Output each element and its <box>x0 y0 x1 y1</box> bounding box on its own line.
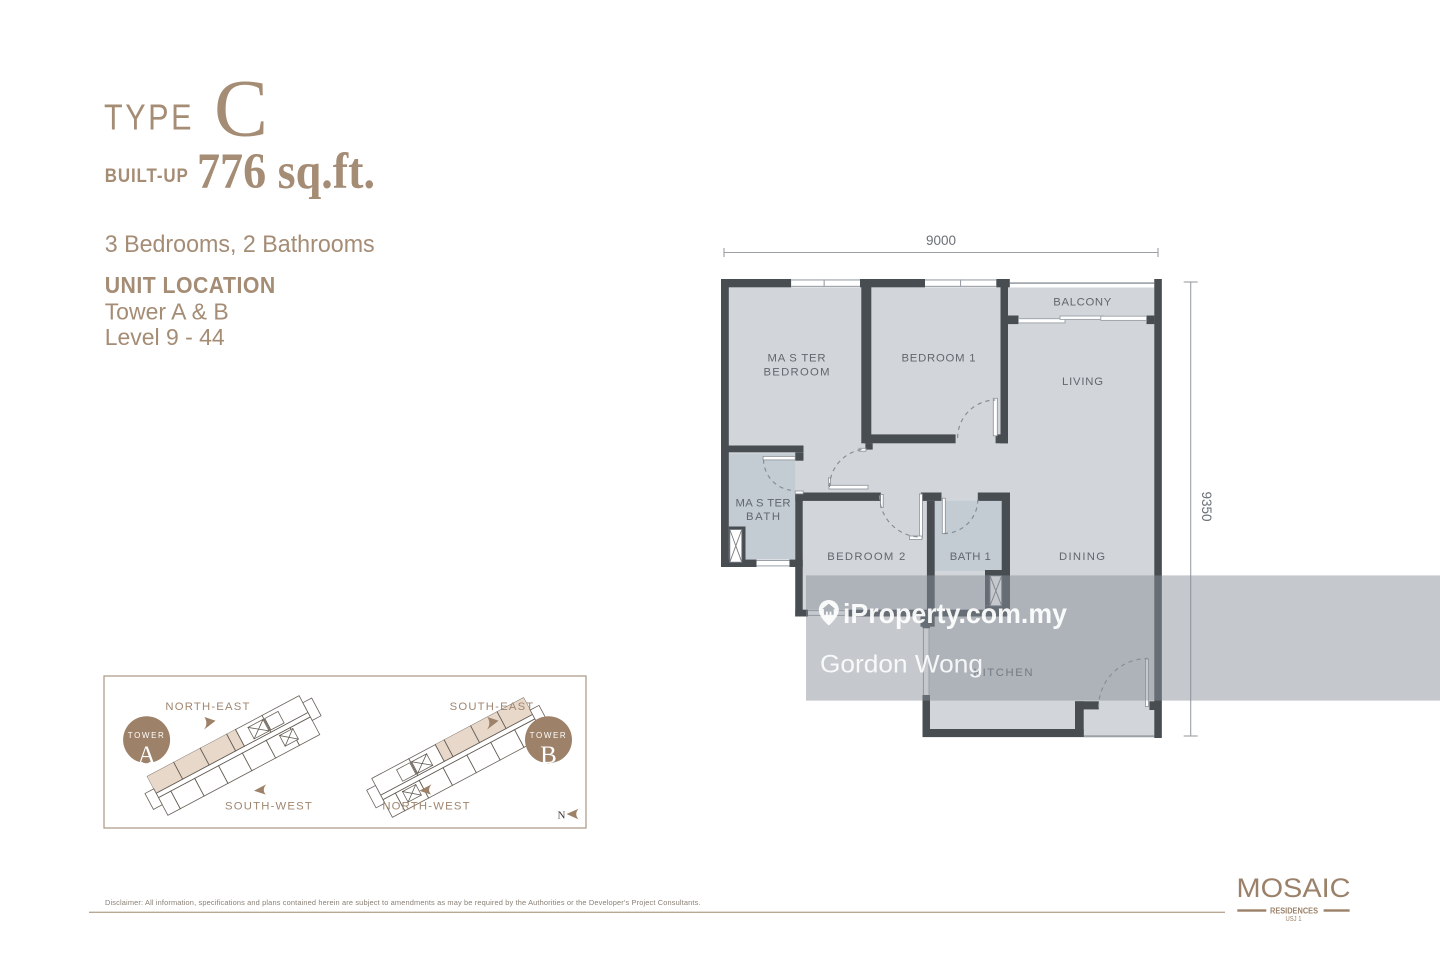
svg-text:MA S TER: MA S TER <box>768 352 826 364</box>
svg-text:LIVING: LIVING <box>1062 376 1103 388</box>
svg-text:N: N <box>558 810 566 822</box>
svg-text:9000: 9000 <box>926 233 956 248</box>
svg-text:B: B <box>540 742 557 769</box>
svg-text:BEDROOM: BEDROOM <box>764 366 830 378</box>
svg-text:USJ 1: USJ 1 <box>1286 914 1302 923</box>
svg-text:BATH: BATH <box>746 511 780 523</box>
svg-text:MOSAIC: MOSAIC <box>1237 873 1351 903</box>
svg-text:NORTH-WEST: NORTH-WEST <box>382 801 470 813</box>
svg-text:BEDROOM 1: BEDROOM 1 <box>902 352 976 364</box>
svg-text:BALCONY: BALCONY <box>1053 297 1111 309</box>
svg-text:iProperty.com.my: iProperty.com.my <box>843 598 1067 629</box>
svg-text:TOWER: TOWER <box>128 731 166 740</box>
svg-text:SOUTH-WEST: SOUTH-WEST <box>225 801 313 813</box>
svg-text:A: A <box>138 742 156 769</box>
svg-text:TOWER: TOWER <box>530 731 568 740</box>
svg-text:Gordon Wong: Gordon Wong <box>820 651 983 679</box>
svg-text:SOUTH-EAST: SOUTH-EAST <box>450 701 535 713</box>
svg-text:MA S TER: MA S TER <box>736 497 791 509</box>
svg-text:NORTH-EAST: NORTH-EAST <box>165 701 250 713</box>
svg-text:BATH 1: BATH 1 <box>950 551 991 563</box>
svg-text:DINING: DINING <box>1059 551 1105 563</box>
svg-text:9350: 9350 <box>1199 491 1214 521</box>
